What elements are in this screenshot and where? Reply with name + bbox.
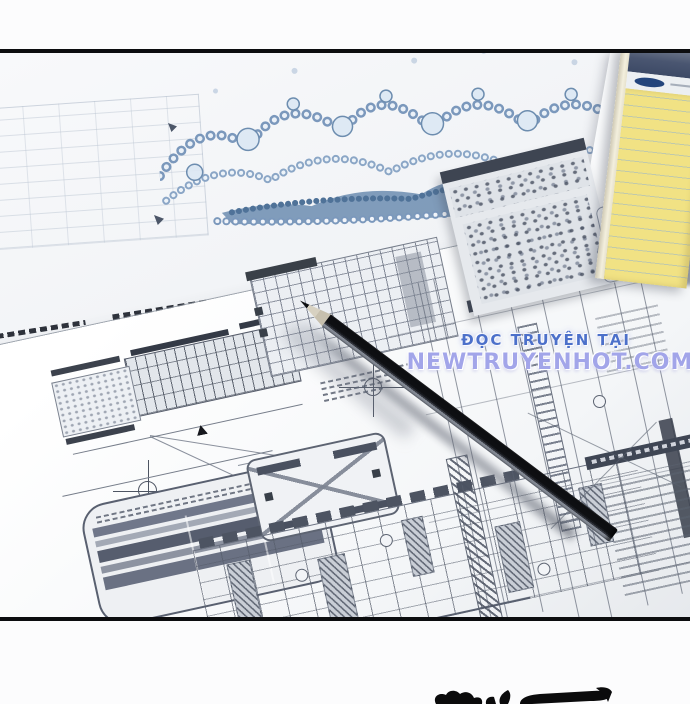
wall-bar bbox=[245, 257, 317, 281]
hatched-cell bbox=[317, 553, 360, 617]
reference-bubble bbox=[379, 533, 394, 548]
watermark-line-2: NEWTRUYENHOT.COM bbox=[400, 350, 690, 375]
desk-scene-panel: ĐỌC TRUYỆN TẠI NEWTRUYENHOT.COM bbox=[0, 53, 690, 617]
reference-bubble bbox=[536, 561, 551, 576]
column-block bbox=[254, 307, 264, 317]
column-block bbox=[259, 328, 269, 338]
panel-border-bottom bbox=[0, 617, 690, 621]
sound-effect-text bbox=[428, 686, 618, 704]
brand-badge-icon bbox=[634, 76, 665, 88]
reference-bubble bbox=[294, 568, 309, 583]
hatched-cell bbox=[226, 560, 263, 617]
comic-panel-image: ĐỌC TRUYỆN TẠI NEWTRUYENHOT.COM bbox=[0, 0, 690, 704]
anchor-block bbox=[372, 469, 382, 479]
anchor-block bbox=[264, 492, 274, 502]
watermark-line-1: ĐỌC TRUYỆN TẠI bbox=[406, 331, 686, 349]
brand-text bbox=[670, 83, 690, 88]
